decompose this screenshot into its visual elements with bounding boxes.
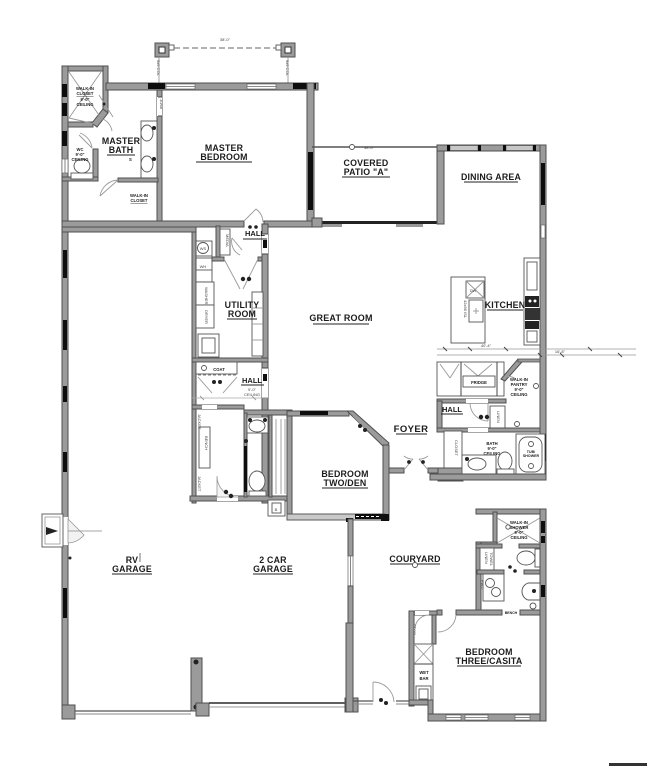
svg-text:FOYER: FOYER bbox=[394, 424, 429, 435]
svg-text:LINEN: LINEN bbox=[484, 552, 489, 564]
svg-text:CEILING: CEILING bbox=[77, 102, 94, 107]
svg-text:THREE/CASITA: THREE/CASITA bbox=[456, 656, 523, 666]
svg-text:ROOM: ROOM bbox=[228, 309, 256, 319]
svg-text:40'-4": 40'-4" bbox=[481, 343, 492, 348]
svg-text:TOWEL: TOWEL bbox=[489, 552, 494, 567]
svg-text:DRYER: DRYER bbox=[204, 310, 209, 324]
svg-text:BATH: BATH bbox=[109, 145, 134, 155]
svg-text:HALL: HALL bbox=[442, 405, 462, 414]
svg-text:38'-0": 38'-0" bbox=[220, 37, 231, 42]
svg-text:42x96 ISL: 42x96 ISL bbox=[463, 300, 468, 319]
svg-text:KITCHEN: KITCHEN bbox=[485, 300, 526, 310]
svg-text:38'-0": 38'-0" bbox=[364, 145, 375, 150]
svg-text:9x9 COL: 9x9 COL bbox=[156, 60, 161, 77]
svg-text:CEILING: CEILING bbox=[511, 392, 528, 397]
svg-text:MEDIA: MEDIA bbox=[225, 234, 230, 247]
svg-text:9x9 COL: 9x9 COL bbox=[285, 60, 290, 77]
svg-text:30/68: 30/68 bbox=[159, 99, 164, 110]
svg-text:B: B bbox=[275, 507, 278, 512]
svg-text:SHOWER: SHOWER bbox=[523, 454, 540, 458]
svg-text:JACKET: JACKET bbox=[197, 476, 202, 492]
svg-text:PATIO "A": PATIO "A" bbox=[344, 167, 389, 177]
svg-text:HALL: HALL bbox=[245, 229, 265, 238]
svg-text:CLOSET: CLOSET bbox=[131, 198, 148, 203]
svg-text:PWD: PWD bbox=[480, 580, 485, 589]
svg-text:WASHER: WASHER bbox=[204, 287, 209, 305]
svg-text:CLOSET: CLOSET bbox=[454, 440, 459, 457]
svg-text:FRIDGE: FRIDGE bbox=[471, 380, 487, 385]
svg-text:COAT: COAT bbox=[213, 367, 225, 372]
svg-text:LINEN: LINEN bbox=[496, 411, 501, 423]
svg-text:S: S bbox=[129, 157, 132, 162]
svg-text:CEILING: CEILING bbox=[72, 157, 89, 162]
svg-text:TWO/DEN: TWO/DEN bbox=[324, 478, 367, 488]
svg-text:GARAGE: GARAGE bbox=[112, 564, 152, 574]
svg-text:WET: WET bbox=[419, 670, 429, 675]
svg-text:BEDROOM: BEDROOM bbox=[200, 152, 247, 162]
svg-text:GREAT ROOM: GREAT ROOM bbox=[309, 313, 372, 323]
svg-text:BENCH: BENCH bbox=[505, 611, 518, 615]
svg-text:WH: WH bbox=[200, 264, 207, 269]
svg-text:GARAGE: GARAGE bbox=[253, 564, 293, 574]
svg-text:WS: WS bbox=[200, 246, 207, 251]
svg-text:HALL: HALL bbox=[242, 376, 262, 385]
svg-text:BAR: BAR bbox=[419, 676, 428, 681]
svg-text:CEILING: CEILING bbox=[511, 535, 528, 540]
svg-text:BENCH: BENCH bbox=[204, 436, 209, 450]
svg-text:DINING AREA: DINING AREA bbox=[461, 172, 521, 182]
svg-text:DW: DW bbox=[470, 288, 477, 293]
svg-text:16'-8": 16'-8" bbox=[555, 349, 566, 354]
svg-text:CLOSET: CLOSET bbox=[77, 91, 94, 96]
svg-text:JACKET: JACKET bbox=[197, 414, 202, 430]
